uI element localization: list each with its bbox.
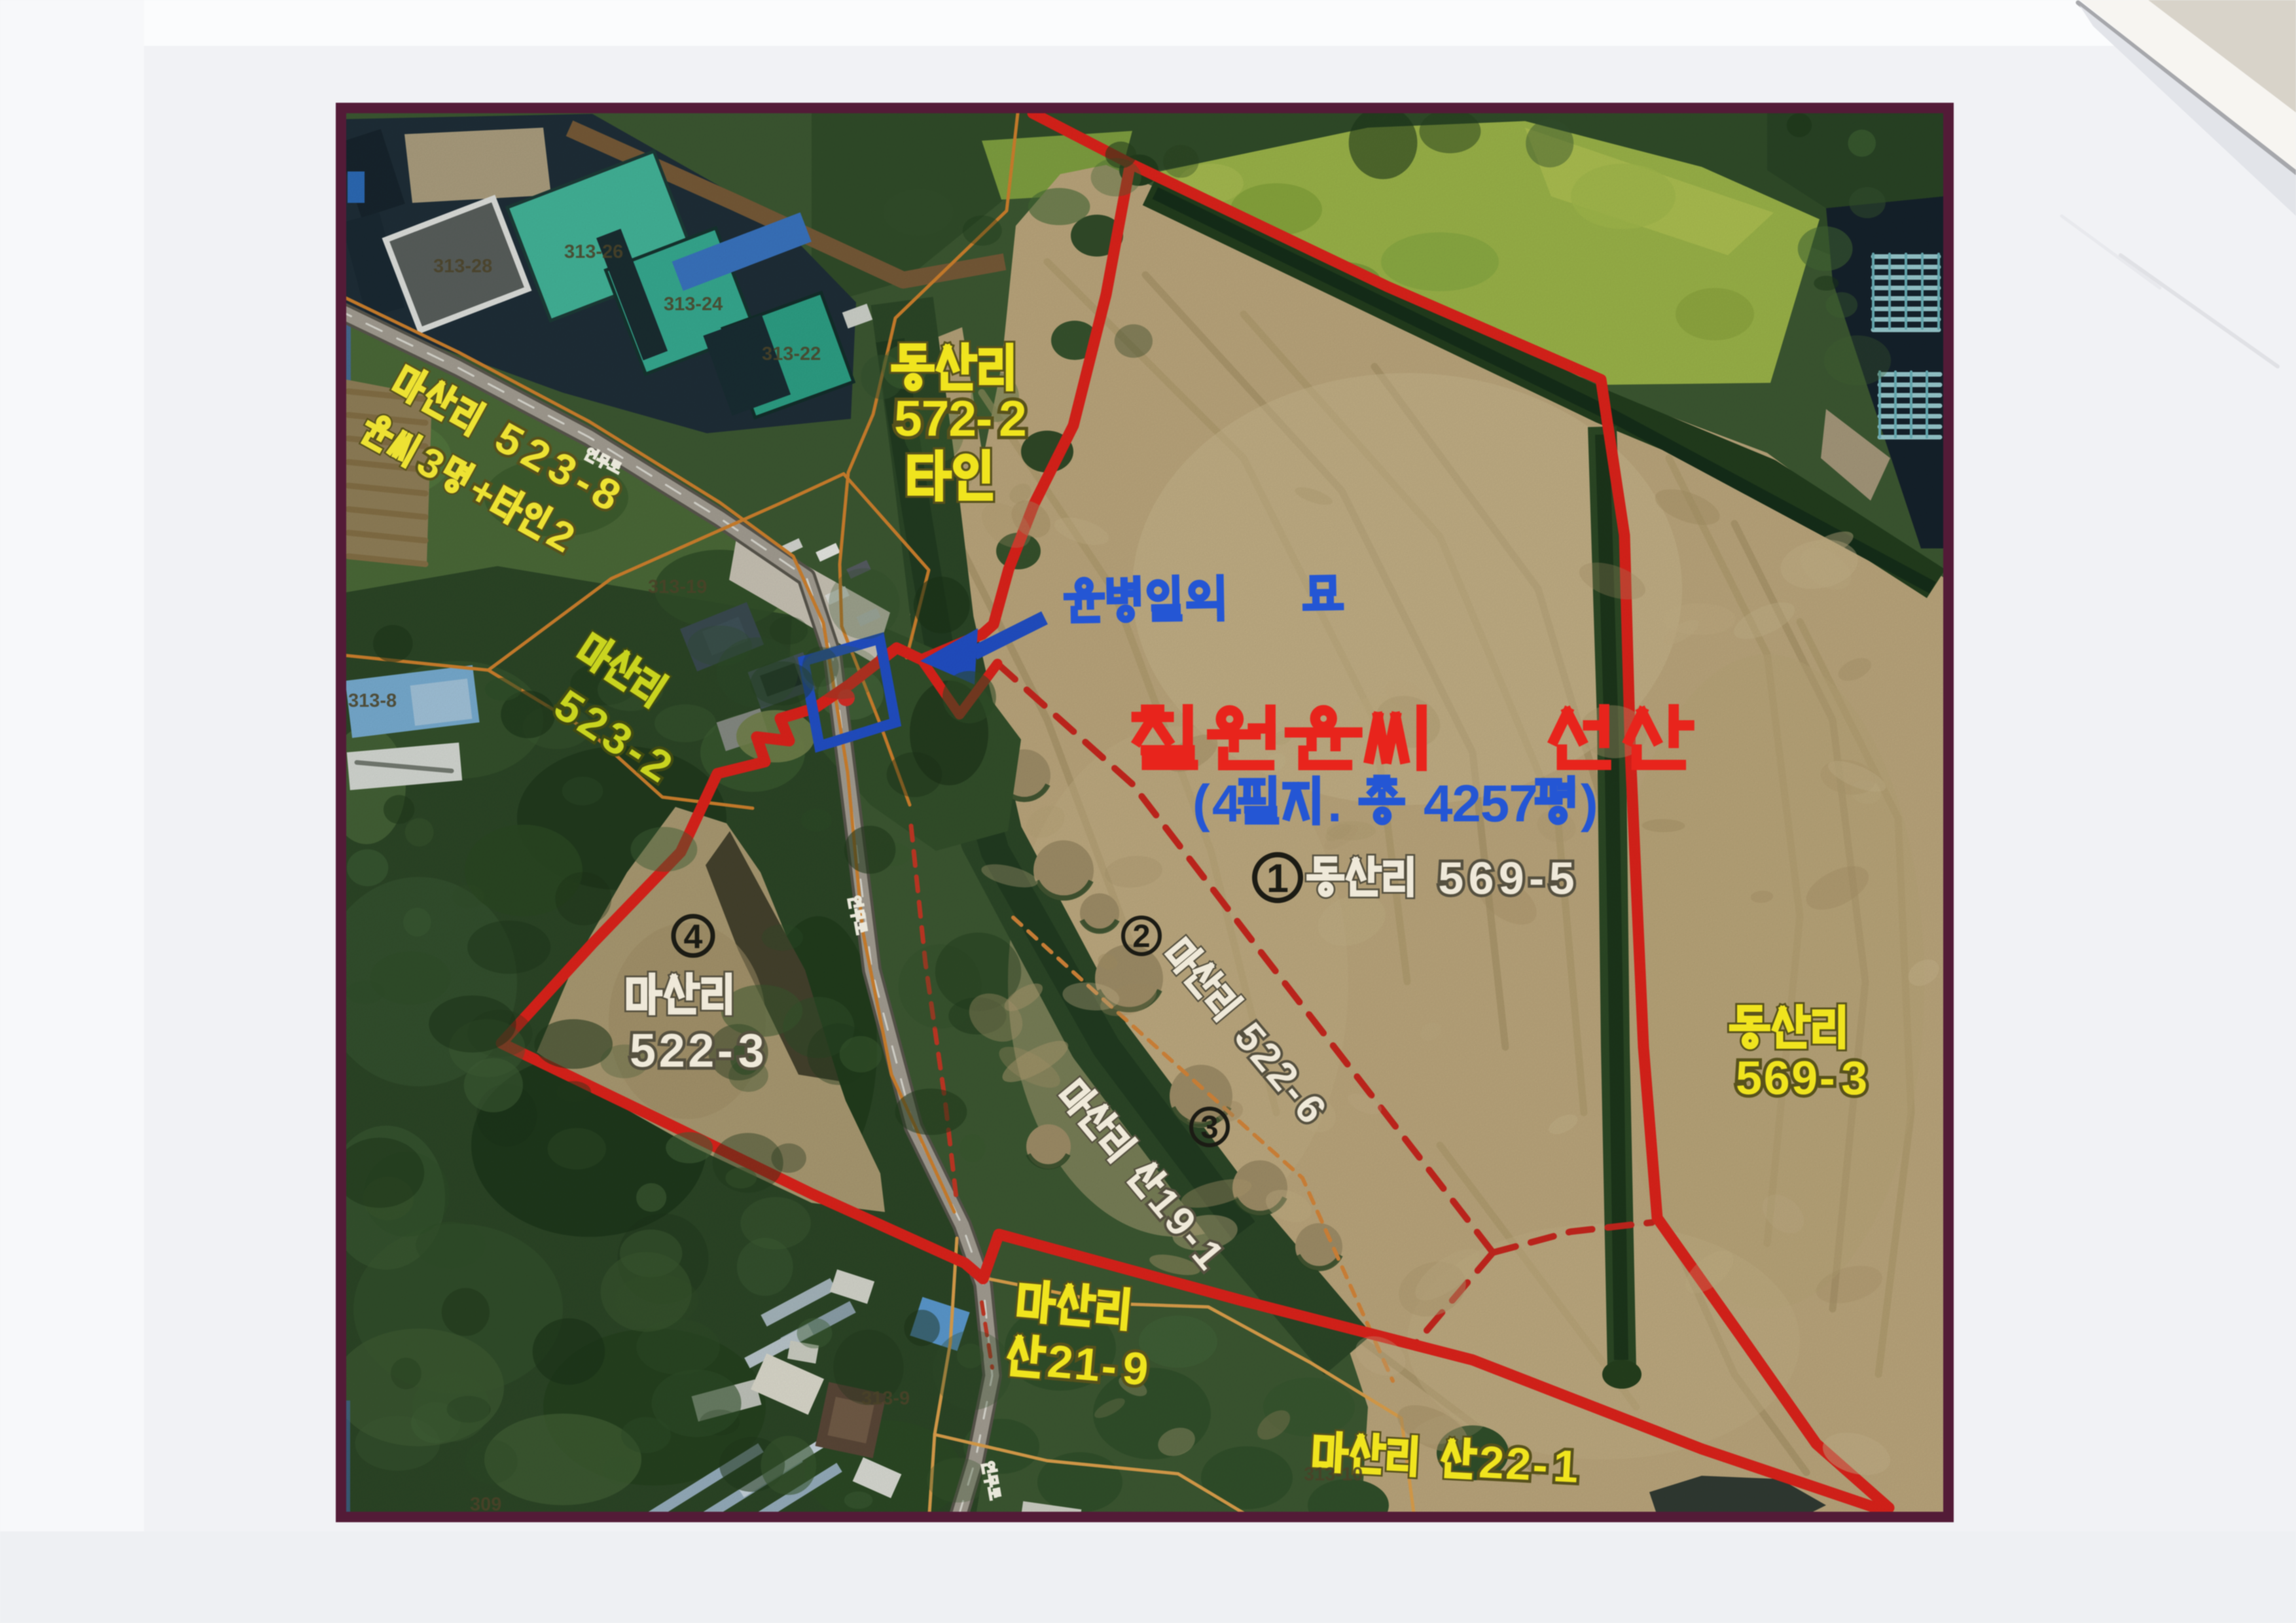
svg-text:5: 5 [1438, 853, 1463, 904]
svg-text:2: 2 [659, 1025, 685, 1077]
svg-text:3: 3 [1841, 1052, 1867, 1105]
svg-text:1: 1 [1552, 1440, 1579, 1492]
svg-text:4: 4 [684, 918, 703, 956]
svg-text:3: 3 [1200, 1110, 1218, 1145]
svg-text:2: 2 [1478, 1436, 1505, 1488]
svg-text:313-24: 313-24 [664, 294, 723, 315]
svg-text:5: 5 [1480, 774, 1510, 832]
svg-text:-: - [976, 391, 993, 447]
svg-text:7: 7 [922, 391, 950, 447]
svg-text:309: 309 [470, 1494, 501, 1515]
svg-text:4: 4 [1212, 774, 1242, 832]
svg-text:1: 1 [1266, 856, 1289, 901]
svg-text:9: 9 [1121, 1342, 1151, 1395]
svg-text:-: - [717, 1025, 733, 1077]
svg-text:-: - [1532, 1440, 1549, 1491]
svg-text:5: 5 [1736, 1052, 1762, 1105]
svg-text:2: 2 [688, 1025, 714, 1077]
svg-text:3: 3 [738, 1025, 764, 1077]
svg-text:): ) [1581, 774, 1598, 832]
svg-text:2: 2 [1132, 919, 1150, 954]
svg-text:313-9: 313-9 [861, 1388, 910, 1409]
svg-text:313-8: 313-8 [348, 690, 397, 711]
svg-text:2: 2 [1045, 1336, 1075, 1389]
svg-text:313-10: 313-10 [1304, 1464, 1363, 1485]
svg-text:(: ( [1193, 774, 1210, 832]
svg-text:6: 6 [1764, 1052, 1790, 1105]
svg-text:313-26: 313-26 [564, 241, 623, 262]
svg-text:5: 5 [894, 391, 922, 447]
svg-text:9: 9 [1499, 853, 1524, 904]
svg-text:313-22: 313-22 [762, 344, 821, 365]
svg-text:2: 2 [999, 391, 1027, 447]
svg-text:9: 9 [1791, 1052, 1818, 1105]
svg-text:.: . [1327, 774, 1342, 832]
svg-text:6: 6 [1469, 853, 1494, 904]
svg-text:7: 7 [1509, 774, 1538, 832]
svg-text:2: 2 [1452, 774, 1481, 832]
svg-text:313-19: 313-19 [648, 577, 707, 597]
svg-text:2: 2 [1505, 1438, 1532, 1489]
svg-text:-: - [1529, 853, 1544, 904]
svg-text:-: - [1820, 1052, 1835, 1105]
svg-text:5: 5 [1549, 853, 1575, 904]
svg-text:313-28: 313-28 [433, 256, 492, 277]
svg-text:2: 2 [948, 391, 977, 447]
svg-text:5: 5 [630, 1025, 656, 1077]
svg-text:1: 1 [1072, 1338, 1102, 1391]
svg-text:4: 4 [1424, 774, 1453, 832]
